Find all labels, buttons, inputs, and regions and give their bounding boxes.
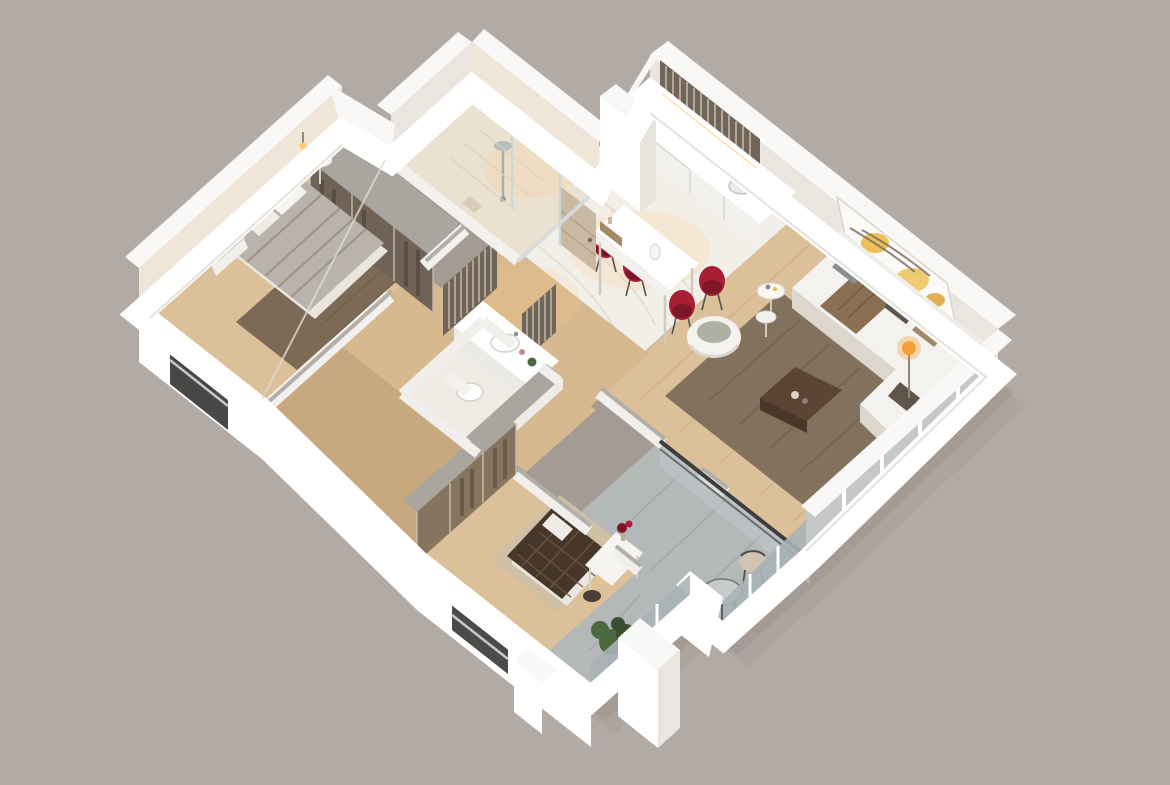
table-vase [650,244,660,260]
bath2-tap [514,332,518,336]
bath2-plant [528,358,537,367]
door-handle [588,238,592,242]
apartment-render [0,0,1170,785]
floor-plan-stage [0,0,1170,785]
bedroom2-stool [583,590,601,602]
white-armchair [687,316,741,358]
bath2-flowers [519,349,525,355]
